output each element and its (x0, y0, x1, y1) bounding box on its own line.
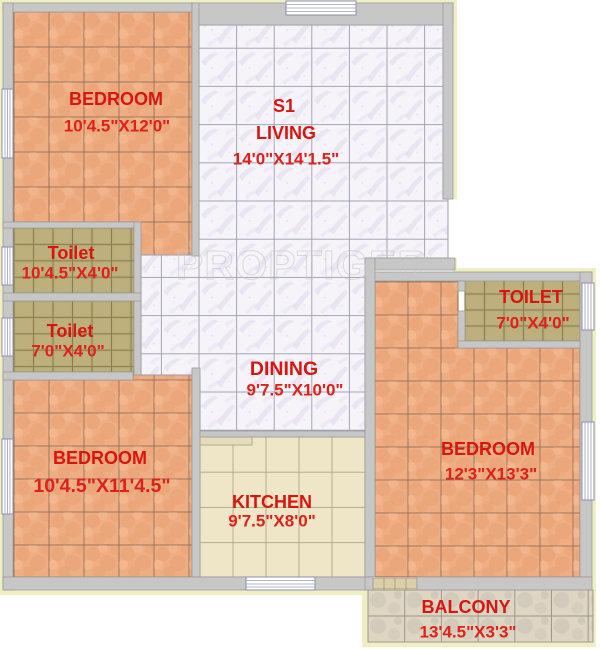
svg-text:TOILET: TOILET (499, 287, 563, 307)
svg-text:LIVING: LIVING (256, 123, 316, 143)
svg-text:S1: S1 (273, 96, 295, 116)
svg-text:Toilet: Toilet (47, 321, 94, 341)
svg-text:10'4.5"X12'0": 10'4.5"X12'0" (64, 117, 170, 136)
svg-text:KITCHEN: KITCHEN (232, 492, 312, 512)
svg-text:12'3"X13'3": 12'3"X13'3" (445, 465, 537, 484)
svg-text:DINING: DINING (250, 358, 318, 380)
svg-text:10'4.5"X11'4.5": 10'4.5"X11'4.5" (33, 475, 170, 497)
svg-text:BEDROOM: BEDROOM (69, 89, 163, 109)
svg-text:9'7.5"X10'0": 9'7.5"X10'0" (247, 381, 344, 400)
svg-text:14'0"X14'1.5": 14'0"X14'1.5" (233, 150, 339, 169)
svg-text:Toilet: Toilet (48, 243, 95, 263)
svg-text:10'4.5"X4'0": 10'4.5"X4'0" (22, 264, 119, 283)
svg-text:BEDROOM: BEDROOM (441, 439, 535, 459)
svg-text:BALCONY: BALCONY (422, 597, 511, 617)
svg-text:BEDROOM: BEDROOM (53, 448, 147, 468)
svg-text:PROPTIGER: PROPTIGER (176, 242, 428, 288)
svg-text:7'0"X4'0": 7'0"X4'0" (496, 314, 569, 333)
svg-text:9'7.5"X8'0": 9'7.5"X8'0" (228, 512, 316, 531)
svg-text:13'4.5"X3'3": 13'4.5"X3'3" (420, 623, 517, 642)
svg-text:7'0"X4'0": 7'0"X4'0" (31, 342, 104, 361)
